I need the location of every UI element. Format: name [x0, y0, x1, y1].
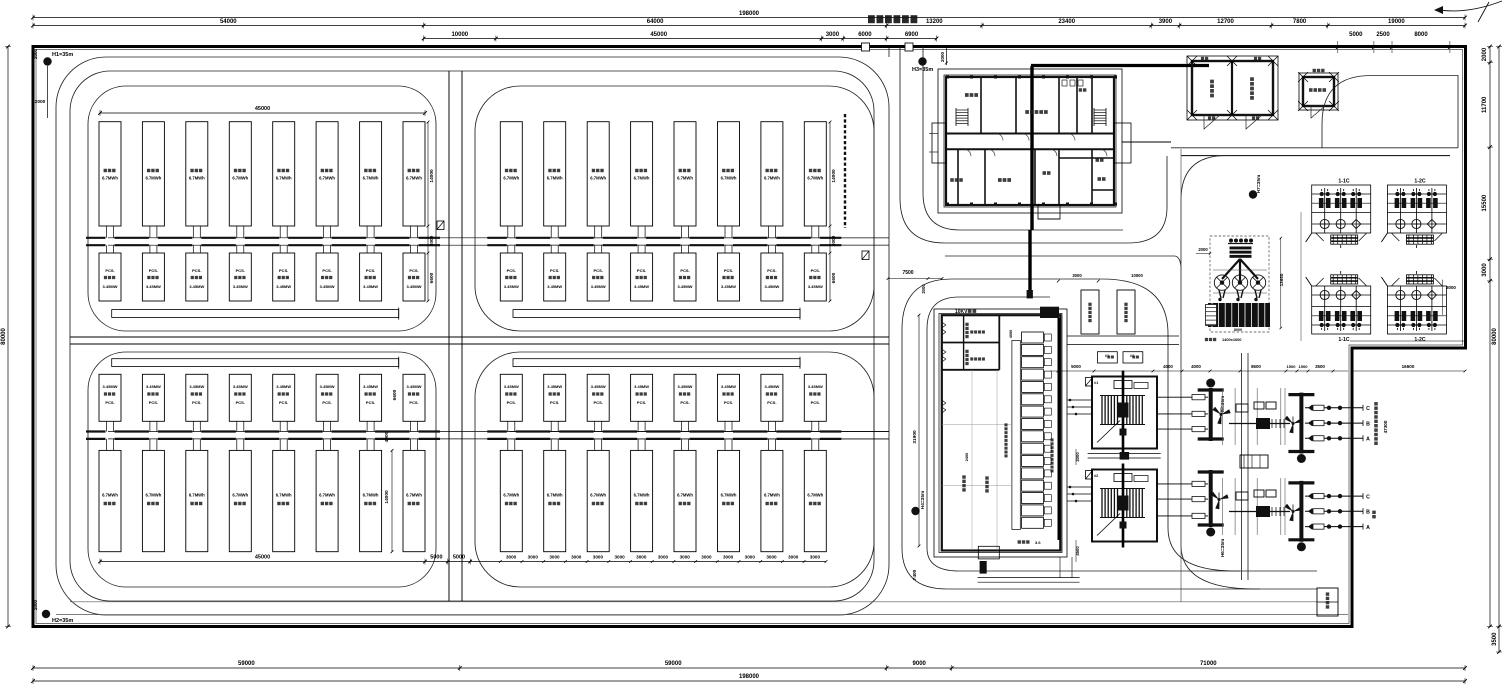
svg-text:3.45MW: 3.45MW: [363, 384, 378, 389]
svg-text:3000: 3000: [614, 555, 625, 560]
svg-text:3000: 3000: [1482, 263, 1488, 277]
svg-text:3000: 3000: [788, 555, 799, 560]
svg-text:PCS.: PCS.: [724, 400, 733, 405]
svg-text:6.7MWh: 6.7MWh: [363, 493, 379, 498]
svg-text:4000: 4000: [1191, 364, 1201, 369]
svg-text:6.7MWh: 6.7MWh: [406, 493, 422, 498]
svg-text:59000: 59000: [665, 661, 682, 667]
svg-text:PCS.: PCS.: [767, 400, 776, 405]
svg-text:6.7MWh: 6.7MWh: [102, 493, 118, 498]
svg-text:PCS.: PCS.: [366, 400, 375, 405]
svg-text:PCS.: PCS.: [279, 400, 288, 405]
svg-text:1500: 1500: [1299, 364, 1309, 369]
svg-text:8000: 8000: [1234, 328, 1242, 332]
svg-text:59000: 59000: [238, 661, 255, 667]
svg-text:23400: 23400: [1058, 19, 1075, 25]
svg-text:6.7MWh: 6.7MWh: [764, 493, 780, 498]
svg-text:PCS.: PCS.: [409, 400, 418, 405]
svg-text:6.7MWh: 6.7MWh: [145, 493, 161, 498]
svg-text:31900: 31900: [912, 430, 918, 444]
svg-text:6.7MWh: 6.7MWh: [677, 176, 693, 181]
svg-text:3.45MW: 3.45MW: [363, 284, 378, 289]
svg-text:A: A: [1366, 525, 1370, 531]
svg-text:3000: 3000: [528, 555, 539, 560]
svg-text:3.45MW: 3.45MW: [547, 284, 562, 289]
svg-text:13650: 13650: [1279, 273, 1284, 286]
svg-text:3.45MW: 3.45MW: [276, 284, 291, 289]
svg-text:PCS.: PCS.: [507, 400, 516, 405]
svg-text:2000: 2000: [33, 599, 38, 610]
svg-text:10000: 10000: [1131, 273, 1143, 278]
svg-text:6.7MWh: 6.7MWh: [721, 493, 737, 498]
svg-text:PCS.: PCS.: [149, 400, 158, 405]
svg-text:4000: 4000: [384, 431, 390, 442]
svg-text:6.7MWh: 6.7MWh: [232, 493, 248, 498]
svg-text:15500: 15500: [1482, 194, 1488, 211]
svg-text:12700: 12700: [1217, 19, 1234, 25]
svg-text:H6=35m: H6=35m: [1220, 539, 1226, 558]
svg-text:6.7MWh: 6.7MWh: [634, 176, 650, 181]
svg-text:PCS.: PCS.: [550, 400, 559, 405]
svg-text:6.7MWh: 6.7MWh: [102, 176, 118, 181]
svg-text:PCS.: PCS.: [279, 268, 288, 273]
svg-text:6600: 6600: [429, 272, 435, 283]
svg-text:3.45MW: 3.45MW: [678, 284, 693, 289]
svg-text:9000: 9000: [913, 661, 927, 667]
svg-text:1-1C: 1-1C: [1338, 337, 1349, 343]
svg-text:3.45MW: 3.45MW: [407, 384, 422, 389]
svg-text:45000: 45000: [255, 106, 270, 112]
svg-text:3.45MW: 3.45MW: [146, 384, 161, 389]
svg-text:PCS.: PCS.: [149, 268, 158, 273]
svg-text:6.7MWh: 6.7MWh: [547, 493, 563, 498]
svg-text:1-2C: 1-2C: [1414, 337, 1425, 343]
svg-text:PCS.: PCS.: [550, 268, 559, 273]
svg-text:14000: 14000: [429, 169, 435, 183]
svg-text:6.7MWh: 6.7MWh: [590, 493, 606, 498]
svg-text:3.45MW: 3.45MW: [276, 384, 291, 389]
svg-text:3000: 3000: [701, 555, 712, 560]
svg-text:6.7MWh: 6.7MWh: [503, 176, 519, 181]
svg-text:6.7MWh: 6.7MWh: [634, 493, 650, 498]
svg-text:6.7MWh: 6.7MWh: [764, 176, 780, 181]
svg-text:3.45MW: 3.45MW: [634, 384, 649, 389]
svg-text:3.45MW: 3.45MW: [504, 284, 519, 289]
svg-text:3.45MW: 3.45MW: [407, 284, 422, 289]
svg-text:6.7MWh: 6.7MWh: [721, 176, 737, 181]
svg-text:3.45MW: 3.45MW: [808, 384, 823, 389]
svg-text:14000: 14000: [384, 490, 390, 504]
svg-text:3000: 3000: [636, 555, 647, 560]
svg-text:1-2C: 1-2C: [1414, 179, 1425, 185]
svg-text:3000: 3000: [680, 555, 691, 560]
svg-text:6600: 6600: [831, 272, 837, 283]
svg-text:3.45MW: 3.45MW: [764, 284, 779, 289]
svg-text:1500: 1500: [1287, 364, 1297, 369]
svg-text:11700: 11700: [1482, 96, 1488, 113]
svg-text:6.7MWh: 6.7MWh: [189, 176, 205, 181]
svg-text:PCS.: PCS.: [767, 268, 776, 273]
svg-text:H1=35m: H1=35m: [52, 52, 73, 58]
svg-text:6.7MWh: 6.7MWh: [319, 493, 335, 498]
svg-text:16600: 16600: [1402, 364, 1415, 369]
svg-text:3000: 3000: [810, 555, 821, 560]
svg-text:4000: 4000: [1009, 330, 1013, 338]
svg-text:6.7MWh: 6.7MWh: [232, 176, 248, 181]
svg-text:#1: #1: [1094, 381, 1098, 385]
svg-text:7500: 7500: [902, 270, 913, 276]
svg-text:2000: 2000: [1198, 247, 1208, 252]
svg-text:80000: 80000: [1, 327, 7, 344]
svg-text:2400: 2400: [965, 453, 969, 461]
svg-text:1400x1600: 1400x1600: [1222, 337, 1241, 342]
svg-text:10000: 10000: [451, 32, 468, 38]
svg-text:6.7MWh: 6.7MWh: [547, 176, 563, 181]
svg-text:54000: 54000: [220, 19, 237, 25]
svg-text:PCS.: PCS.: [409, 268, 418, 273]
svg-text:64000: 64000: [647, 19, 664, 25]
svg-text:7400: 7400: [912, 569, 918, 580]
svg-text:2000: 2000: [921, 284, 926, 294]
svg-text:PCS.: PCS.: [236, 400, 245, 405]
svg-text:PCS.: PCS.: [192, 268, 201, 273]
svg-text:7800: 7800: [1293, 19, 1307, 25]
svg-text:6.7MWh: 6.7MWh: [276, 176, 292, 181]
svg-text:6.7MWh: 6.7MWh: [503, 493, 519, 498]
svg-text:6.7MWh: 6.7MWh: [406, 176, 422, 181]
svg-text:PCS.: PCS.: [192, 400, 201, 405]
svg-text:PCS.: PCS.: [594, 400, 603, 405]
svg-text:4000: 4000: [831, 235, 837, 246]
svg-text:H2=35m: H2=35m: [52, 618, 73, 624]
svg-text:C: C: [1366, 406, 1370, 412]
svg-text:3.45MW: 3.45MW: [103, 284, 118, 289]
svg-text:C: C: [1366, 494, 1370, 500]
svg-text:5000: 5000: [430, 555, 442, 561]
svg-text:2000: 2000: [940, 51, 945, 62]
svg-text:3.45MW: 3.45MW: [764, 384, 779, 389]
svg-text:2000: 2000: [35, 99, 46, 105]
svg-text:19000: 19000: [1388, 19, 1405, 25]
svg-text:6.7MWh: 6.7MWh: [807, 176, 823, 181]
svg-text:PCS.: PCS.: [366, 268, 375, 273]
svg-text:3.45MW: 3.45MW: [634, 284, 649, 289]
svg-text:3500: 3500: [1492, 632, 1498, 646]
svg-text:3.45MW: 3.45MW: [547, 384, 562, 389]
svg-text:3000: 3000: [826, 32, 840, 38]
svg-text:6.7MWh: 6.7MWh: [363, 176, 379, 181]
svg-text:2500: 2500: [1376, 32, 1390, 38]
svg-text:PCS.: PCS.: [680, 268, 689, 273]
svg-text:3500: 3500: [1315, 364, 1325, 369]
svg-text:3000: 3000: [1446, 285, 1456, 290]
svg-text:3.45MW: 3.45MW: [591, 284, 606, 289]
svg-text:3000: 3000: [1072, 273, 1082, 278]
svg-text:PCS.: PCS.: [322, 268, 331, 273]
svg-text:3.45MW: 3.45MW: [189, 384, 204, 389]
svg-text:6.7MWh: 6.7MWh: [145, 176, 161, 181]
svg-text:6.7MWh: 6.7MWh: [807, 493, 823, 498]
svg-text:3000: 3000: [549, 555, 560, 560]
svg-text:PCS.: PCS.: [507, 268, 516, 273]
svg-text:198000: 198000: [739, 11, 760, 17]
svg-text:3000: 3000: [723, 555, 734, 560]
svg-text:H3=35m: H3=35m: [912, 67, 933, 73]
svg-text:PCS.: PCS.: [637, 400, 646, 405]
svg-text:3.45MW: 3.45MW: [233, 384, 248, 389]
svg-text:3000: 3000: [571, 555, 582, 560]
svg-text:6.7MWh: 6.7MWh: [319, 176, 335, 181]
svg-text:3.6: 3.6: [1035, 540, 1041, 545]
svg-text:6.7MWh: 6.7MWh: [276, 493, 292, 498]
svg-text:10KV: 10KV: [955, 309, 968, 315]
svg-text:3.45MW: 3.45MW: [146, 284, 161, 289]
svg-text:3.45MW: 3.45MW: [103, 384, 118, 389]
svg-text:5000: 5000: [1071, 364, 1081, 369]
svg-text:6900: 6900: [905, 32, 919, 38]
svg-text:3.45MW: 3.45MW: [808, 284, 823, 289]
svg-text:5000: 5000: [1349, 32, 1363, 38]
svg-text:45000: 45000: [650, 32, 667, 38]
svg-text:3000: 3000: [745, 555, 756, 560]
svg-text:4000: 4000: [1163, 364, 1173, 369]
svg-text:3.45MW: 3.45MW: [320, 384, 335, 389]
svg-text:2000: 2000: [33, 48, 38, 59]
svg-text:B: B: [1366, 421, 1370, 427]
svg-text:B: B: [1366, 510, 1370, 516]
svg-text:6.7MWh: 6.7MWh: [590, 176, 606, 181]
svg-text:6600: 6600: [392, 389, 398, 400]
svg-text:PCS.: PCS.: [594, 268, 603, 273]
svg-text:3.45MW: 3.45MW: [721, 284, 736, 289]
svg-text:3.45MW: 3.45MW: [591, 384, 606, 389]
svg-text:3.45MW: 3.45MW: [678, 384, 693, 389]
svg-text:8600: 8600: [1251, 364, 1261, 369]
svg-text:5000: 5000: [453, 555, 465, 561]
svg-text:3000: 3000: [766, 555, 777, 560]
svg-text:14000: 14000: [831, 169, 837, 183]
svg-text:6000: 6000: [858, 32, 872, 38]
svg-text:8000: 8000: [1414, 32, 1428, 38]
svg-text:#2: #2: [1094, 474, 1098, 478]
svg-text:3000: 3000: [593, 555, 604, 560]
svg-text:PCS.: PCS.: [322, 400, 331, 405]
svg-text:PCS.: PCS.: [680, 400, 689, 405]
svg-text:3.45MW: 3.45MW: [721, 384, 736, 389]
svg-text:PCS.: PCS.: [811, 400, 820, 405]
svg-text:PCS.: PCS.: [236, 268, 245, 273]
svg-text:3000: 3000: [506, 555, 517, 560]
svg-text:71000: 71000: [1200, 661, 1217, 667]
svg-text:PCS.: PCS.: [811, 268, 820, 273]
svg-text:6.7MWh: 6.7MWh: [677, 493, 693, 498]
svg-text:3.45MW: 3.45MW: [320, 284, 335, 289]
svg-text:198000: 198000: [739, 674, 760, 680]
svg-text:PCS.: PCS.: [637, 268, 646, 273]
svg-text:45000: 45000: [255, 555, 270, 561]
svg-text:4000: 4000: [429, 235, 435, 246]
svg-text:2000: 2000: [1482, 47, 1488, 61]
svg-text:13200: 13200: [926, 19, 943, 25]
svg-text:47300: 47300: [1383, 420, 1388, 433]
svg-text:3000: 3000: [658, 555, 669, 560]
svg-text:3.45MW: 3.45MW: [504, 384, 519, 389]
svg-text:PCS.: PCS.: [105, 268, 114, 273]
svg-text:H4=35m: H4=35m: [920, 491, 926, 510]
svg-text:PCS.: PCS.: [724, 268, 733, 273]
svg-text:3.45MW: 3.45MW: [189, 284, 204, 289]
svg-text:3.45MW: 3.45MW: [233, 284, 248, 289]
svg-text:H7=35m: H7=35m: [1256, 175, 1262, 194]
svg-text:3900: 3900: [1159, 19, 1173, 25]
svg-text:A: A: [1366, 437, 1370, 443]
svg-text:80000: 80000: [1492, 327, 1498, 344]
svg-text:1-1C: 1-1C: [1338, 179, 1349, 185]
svg-text:PCS.: PCS.: [105, 400, 114, 405]
svg-text:6.7MWh: 6.7MWh: [189, 493, 205, 498]
